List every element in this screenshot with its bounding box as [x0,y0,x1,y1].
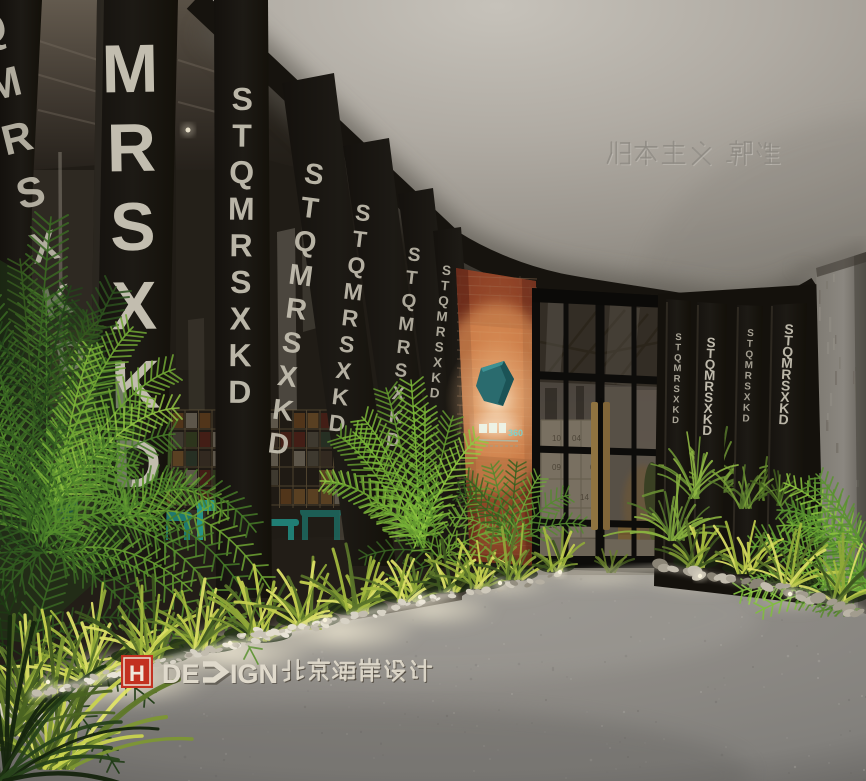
svg-text:K: K [431,370,442,386]
svg-text:R: R [744,371,753,382]
svg-text:S: S [744,381,752,392]
svg-text:S: S [354,199,372,227]
svg-text:M: M [342,278,364,306]
svg-text:R: R [435,324,446,340]
svg-text:M: M [436,308,449,324]
svg-text:T: T [747,339,754,350]
svg-text:S: S [434,339,444,355]
svg-text:M: M [287,259,315,294]
svg-text:D: D [778,411,789,428]
svg-text:Q: Q [229,154,254,190]
svg-text:D: D [742,413,750,424]
svg-text:K: K [228,337,251,373]
svg-text:M: M [397,313,415,336]
svg-text:X: X [432,355,442,371]
svg-text:S: S [338,330,356,358]
svg-text:S: S [231,81,253,117]
svg-text:T: T [232,118,252,154]
svg-text:R: R [106,110,156,187]
svg-text:D: D [228,374,251,410]
svg-text:Q: Q [292,225,319,260]
svg-text:S: S [747,328,755,339]
svg-text:Q: Q [745,349,754,360]
svg-text:D: D [672,415,679,426]
svg-text:X: X [743,392,751,403]
svg-text:H: H [129,661,145,686]
svg-text:S: S [230,264,252,300]
svg-text:D: D [266,427,291,461]
svg-text:R: R [229,227,252,263]
svg-text:K: K [743,403,752,414]
svg-text:DE: DE [162,659,200,689]
svg-text:IGN: IGN [230,659,278,689]
svg-text:360: 360 [508,428,523,438]
svg-text:D: D [702,423,713,438]
svg-text:X: X [230,301,252,337]
svg-text:X: X [111,268,158,345]
svg-text:Q: Q [346,251,367,279]
svg-text:D: D [327,409,347,437]
svg-text:Q: Q [400,290,417,313]
svg-text:D: D [429,385,440,401]
svg-text:S: S [280,326,303,360]
svg-text:S: S [109,189,156,266]
svg-text:R: R [284,292,309,326]
svg-text:S: S [441,263,451,279]
svg-text:M: M [744,360,753,371]
svg-text:S: S [302,158,325,192]
svg-text:M: M [228,191,255,227]
svg-text:S: S [407,244,422,266]
svg-text:R: R [396,337,412,359]
svg-text:Q: Q [438,293,450,309]
svg-text:K: K [271,394,296,428]
svg-text:M: M [101,31,159,108]
